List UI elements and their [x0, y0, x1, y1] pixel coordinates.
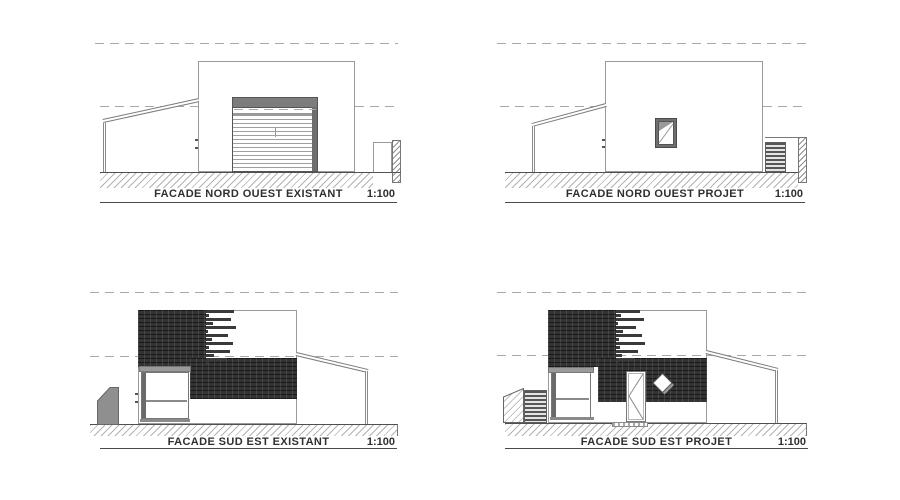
window [551, 372, 591, 418]
lean-to-post [775, 370, 778, 423]
window-jamb [142, 373, 146, 418]
cladding-plank [616, 346, 620, 349]
drawing-caption: FACADE NORD OUEST PROJET 1:100 [505, 188, 805, 201]
cladding-plank [206, 350, 230, 353]
cladding-plank [206, 354, 214, 357]
drawing-scale: 1:100 [775, 188, 803, 200]
cladding-plank [616, 318, 644, 321]
slatted-screen [765, 142, 786, 172]
lean-to-post [103, 123, 106, 172]
drawing-title: FACADE SUD EST EXISTANT [100, 436, 397, 448]
cladding-plank [616, 338, 619, 341]
cladding-plank [616, 358, 634, 361]
boundary-pillar-hatched [798, 137, 807, 183]
drawing-title: FACADE NORD OUEST EXISTANT [100, 188, 397, 200]
retaining-wall [97, 387, 119, 425]
reference-dashed-line [497, 43, 807, 44]
hatched-wall [503, 388, 524, 423]
cladding-plank [206, 338, 212, 341]
boundary-wall [373, 142, 392, 173]
cladding-plank [206, 362, 208, 365]
dimension-tick [135, 393, 138, 395]
garage-door-slats [233, 116, 312, 171]
cladding-plank [616, 354, 622, 357]
cladding-plank [206, 342, 233, 345]
window-sill [550, 417, 594, 420]
cladding-plank [206, 346, 209, 349]
cladding-plank [206, 310, 234, 313]
lean-to-post [365, 371, 368, 424]
drawing-scale: 1:100 [778, 436, 806, 448]
drawing-scale: 1:100 [367, 436, 395, 448]
drawing-canvas: FACADE NORD OUEST EXISTANT 1:100 FACADE … [0, 0, 900, 500]
entry-door [626, 371, 646, 422]
garage-door-side-strip [312, 107, 317, 171]
drawing-caption: FACADE NORD OUEST EXISTANT 1:100 [100, 188, 397, 201]
cladding-plank [206, 330, 208, 333]
diamond-window [650, 371, 675, 396]
window-jamb [552, 373, 556, 417]
cladding-plank [616, 326, 636, 329]
dimension-tick [195, 147, 198, 149]
drawing-title: FACADE SUD EST PROJET [505, 436, 808, 448]
cladding-plank [206, 322, 213, 325]
ground-line [373, 172, 401, 173]
slatted-screen [524, 390, 547, 423]
cladding-plank [206, 326, 236, 329]
lean-to-post [532, 126, 535, 172]
window [655, 118, 677, 148]
cladding-plank [616, 330, 623, 333]
reference-dashed-line [355, 106, 398, 107]
cladding-plank [206, 314, 209, 317]
garage-door-center-mark [275, 128, 276, 137]
window-sill [140, 419, 190, 422]
garage-door [232, 97, 318, 172]
cladding-plank [616, 342, 645, 345]
dimension-tick [602, 139, 605, 141]
cladding-plank [206, 358, 226, 361]
caption-rule [100, 202, 397, 203]
reference-dashed-line [100, 106, 198, 107]
ground-hatch [505, 423, 807, 436]
drawing-title: FACADE NORD OUEST PROJET [505, 188, 805, 200]
drawing-scale: 1:100 [367, 188, 395, 200]
cladding-plank [616, 314, 621, 317]
reference-dashed-line [95, 43, 398, 44]
cladding-plank [206, 334, 228, 337]
cladding-plank [616, 334, 642, 337]
cladding-plank [616, 322, 618, 325]
reference-dashed-line [497, 292, 807, 293]
building-outline [605, 61, 763, 172]
reference-dashed-line [497, 355, 807, 356]
window-rail [146, 400, 187, 402]
reference-dashed-line [90, 356, 398, 357]
caption-rule [505, 202, 805, 203]
reference-dashed-line [763, 106, 807, 107]
dimension-tick [195, 139, 198, 141]
reference-dashed-line [234, 109, 316, 110]
ground-hatch [90, 424, 398, 436]
garage-door-lintel [233, 98, 317, 108]
lean-to-roof [706, 350, 779, 372]
cladding-plank [206, 318, 231, 321]
reference-dashed-line [90, 292, 398, 293]
ground-hatch [100, 172, 373, 188]
window [141, 372, 189, 419]
caption-rule [505, 448, 808, 449]
dimension-tick [135, 401, 138, 403]
cladding-plank [616, 310, 640, 313]
window-rail [556, 398, 589, 400]
cladding-plank [616, 362, 618, 365]
door-threshold [612, 422, 648, 427]
ground-hatch [505, 172, 798, 188]
caption-rule [100, 448, 397, 449]
dimension-tick [602, 146, 605, 148]
cladding-plank [616, 350, 638, 353]
boundary-pillar-hatched [392, 140, 401, 183]
